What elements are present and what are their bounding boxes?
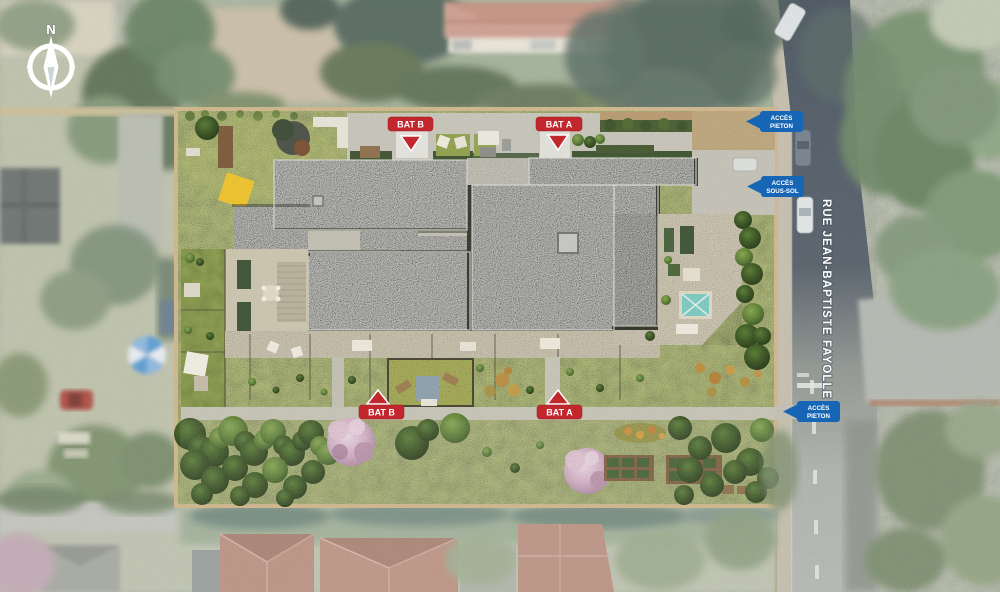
svg-text:ACCÈS: ACCÈS bbox=[808, 404, 830, 412]
svg-text:SOUS-SOL: SOUS-SOL bbox=[766, 188, 799, 195]
svg-text:BAT A: BAT A bbox=[546, 120, 573, 130]
svg-text:BAT B: BAT B bbox=[397, 120, 424, 130]
svg-text:PIETON: PIETON bbox=[807, 413, 830, 420]
svg-text:N: N bbox=[46, 22, 55, 37]
svg-text:ACCÈS: ACCÈS bbox=[771, 114, 793, 122]
svg-text:BAT A: BAT A bbox=[546, 408, 573, 418]
svg-text:RUE JEAN-BAPTISTE FAYOLLE: RUE JEAN-BAPTISTE FAYOLLE bbox=[820, 199, 832, 399]
svg-text:ACCÈS: ACCÈS bbox=[772, 179, 794, 187]
svg-text:PIETON: PIETON bbox=[770, 123, 793, 130]
svg-text:BAT B: BAT B bbox=[368, 408, 395, 418]
